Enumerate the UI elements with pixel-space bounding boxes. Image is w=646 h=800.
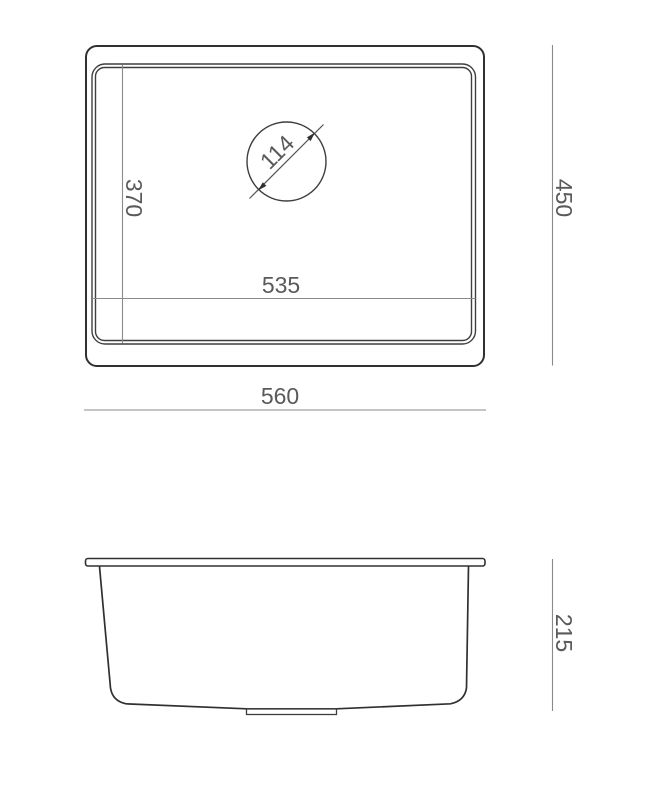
side-bowl-outline [100, 567, 469, 709]
sink-rim-outer-line [92, 64, 476, 344]
bowl-depth-dimension: 370 [121, 179, 147, 217]
overall-depth-dimension: 450 [551, 179, 577, 217]
sink-rim-inner-line [96, 68, 472, 341]
drawing-canvas: 370 535 114 450 560 [0, 0, 646, 800]
top-view: 370 535 114 450 560 [84, 45, 577, 410]
sink-dimension-drawing: 370 535 114 450 560 [0, 0, 646, 800]
side-rim-bar [86, 559, 486, 567]
bowl-width-dimension: 535 [262, 272, 300, 298]
side-drain-fitting [247, 709, 337, 715]
side-view: 215 [86, 559, 578, 715]
drain-diameter-dimension: 114 [255, 130, 299, 174]
overall-width-dimension: 560 [261, 383, 299, 409]
height-dimension: 215 [551, 614, 577, 652]
